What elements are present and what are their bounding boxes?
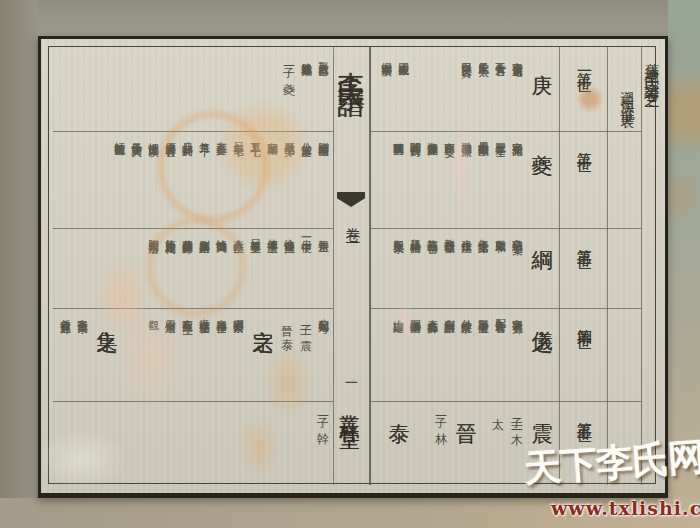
bio-text-column: 保甲黃氏贇 (457, 51, 472, 59)
bio-text-column: 曆七年辛卯 (280, 131, 295, 139)
bio-text-column: 師衛國公配 (110, 131, 125, 139)
genealogy-book-spread: 李氏宗譜 卷三 一 叢桂堂 舊塘李氏宗譜卷之三 遡祖源流世表 第一世第二世第三世… (38, 36, 668, 498)
generation-label: 第五世 (575, 401, 594, 419)
bio-text-column: 配慶拜官石 (491, 308, 506, 316)
bio-text-column: 螺山之原以 (144, 131, 159, 139)
bio-text-column: 贈閣待制封 (406, 131, 421, 139)
bio-text-column: 原鄉曆村甚 (161, 131, 176, 139)
children-note-column: 子一 林 (430, 401, 447, 424)
generation-column-rule (607, 47, 608, 485)
bio-text-column: 豐三年進士 (491, 131, 506, 139)
children-note-column: 子一 夔 (278, 51, 295, 74)
bio-text-column: 日亥年七十 (229, 131, 244, 139)
bio-text-column: 有五葬于是 (212, 131, 227, 139)
bio-text-column: 國夫人徽配 (394, 51, 409, 59)
generation-cell: 第二世 (561, 131, 607, 228)
bio-text-column: 任右通直郎 (56, 308, 71, 316)
generation-cell: 第四世 (561, 308, 607, 401)
bio-text-column: 年八月二十 (195, 131, 210, 139)
title-column-rule (641, 47, 642, 485)
edition-title: 舊塘李氏宗譜卷之三 (639, 51, 661, 87)
bio-text-column: 飭建忠定祠 (161, 228, 176, 236)
watermark-site-url: www.txlishi.com (551, 497, 700, 519)
generation-cell: 第一世 (561, 51, 607, 131)
bio-text-column: 子之風配太 (474, 51, 489, 59)
bio-text-column: 費葬殮賻卹 (178, 228, 193, 236)
ancestor-name: 震 (525, 401, 553, 407)
bio-text-column: 宣和三年閏 (263, 131, 278, 139)
children-note-column: 太 (487, 401, 504, 409)
bio-text-column: 滁知邵州兼 (457, 131, 472, 139)
children-note-column: 晉 泰 (276, 308, 293, 330)
bio-text-column: 觀 (144, 308, 159, 312)
bio-text-column: 寫劍旗誥假 (440, 308, 455, 316)
bio-text-column: 郡太君自邵 (314, 51, 329, 59)
volume-label: 卷三 (342, 215, 362, 223)
generation-band: 夔字斯和宋元豐三年進士累官徽猷閣滁知邵州兼京西兩路安撫使建炎間贈閣待制封隴西開國… (371, 131, 559, 228)
ancestor-name: 綱 (525, 228, 553, 234)
bio-text-column: 八日葬於閭 (178, 131, 193, 139)
section-title: 遡祖源流世表 (609, 79, 637, 109)
bio-text-column: 字華胄高宗 (73, 308, 88, 316)
generation-band: 子一 幹 (53, 401, 333, 489)
bio-text-column: 拜丞相特贈 (406, 228, 421, 236)
bio-text-column: 管台州崇道 (161, 308, 176, 316)
bio-text-column: 李九麓葬衡 (423, 308, 438, 316)
bio-text-column: 字伯紀號梁 (508, 228, 523, 236)
bio-text-column: 教授歷仕徽 (440, 228, 455, 236)
ancestor-name: 晉 (449, 401, 477, 407)
bio-text-column: 興十年正月 (314, 228, 329, 236)
generation-band: 公祠配知考子三 震晉 泰宗之字綱與蔡余廕補進士任復櫝建士任右宣教郎主管台州崇道觀… (53, 308, 333, 401)
bio-text-column: 嗣緣臺特贈 (406, 308, 421, 316)
bio-text-column: 字斯和宋元 (508, 131, 523, 139)
bio-text-column: 悼遣使傳問 (212, 228, 227, 236)
bio-text-column: 廕補進士任 (212, 308, 227, 316)
bio-text-column: 京西兩路安 (440, 131, 455, 139)
bio-text-column: 公生於宋慶 (297, 131, 312, 139)
ancestor-name: 庚 (525, 51, 553, 57)
bio-text-column: 不仕有古君 (491, 51, 506, 59)
ancestor-name: 儀之 (525, 308, 553, 314)
bio-text-column: 欽高三朝官 (423, 228, 438, 236)
photo-backdrop-left (0, 0, 38, 528)
bio-text-column: 使潭州十五 (263, 228, 278, 236)
bio-text-column: 谿宋政和二 (491, 228, 506, 236)
ancestor-name: 夔 (525, 131, 553, 137)
bio-text-column: 日薨享年五 (246, 228, 261, 236)
bio-text-column: 字象賢號郊 (508, 308, 523, 316)
children-note-column: 子一 幹 (312, 401, 329, 424)
generation-band: 贈太師衛國公生於宋慶曆七年辛卯宣和三年閏五月二十七日亥年七十有五葬于是年八月二十… (53, 131, 333, 228)
generation-label: 第一世 (575, 51, 594, 69)
generation-band: 興十年正月十一日中使徐甫傳宣撫使潭州十五日薨享年五十有八上軫悼遣使傳問瘞別其塋給… (53, 228, 333, 308)
bio-text-column: 十一日中使 (297, 228, 312, 236)
children-note-column: 子三 震 (295, 308, 312, 331)
ancestor-name: 泰 (382, 401, 410, 407)
bio-text-column: 謙郡主管甬 (474, 308, 489, 316)
ancestor-name: 集之 (90, 308, 118, 314)
generation-band: 儀之字象賢號郊配慶拜官石謙郡主管甬外排崇院常寫劍旗誥假李九麓葬衡嗣緣臺特贈山諡忠… (371, 308, 559, 401)
bio-text-column: 復櫝建士任 (195, 308, 210, 316)
bio-text-column: 隴西開國男 (389, 131, 404, 139)
generation-cell: 第三世 (561, 228, 607, 308)
bio-text-column: 右宣教郎主 (178, 308, 193, 316)
photo-backdrop-top (0, 0, 700, 36)
bio-text-column: 士歿任鎮江 (457, 228, 472, 236)
generation-band: 郡太君自邵武始遷無錫子一 夔 (53, 51, 333, 131)
bio-text-column: 武始遷無錫 (297, 51, 312, 59)
bio-text-column: 瘞別其塋給 (195, 228, 210, 236)
fold-left-rule (333, 47, 334, 485)
genealogy-title: 李氏宗譜 (336, 50, 366, 74)
generation-band: 庚字廣寅號培居不仕有古君子之風配太保甲黃氏贇國夫人徽配倪氏贈廣平 (371, 51, 559, 131)
bio-text-column: 撫使建炎間 (423, 131, 438, 139)
generation-label: 第二世 (575, 131, 594, 149)
bio-text-column: 累官徽猷閣 (474, 131, 489, 139)
bio-text-column: 字綱與蔡余 (229, 308, 244, 316)
generation-label: 第四世 (575, 308, 594, 326)
bio-text-column: 贈太師衛國 (314, 131, 329, 139)
bio-text-column: 山諡忠定 (389, 308, 404, 315)
hall-name: 叢桂堂 (338, 399, 364, 420)
bio-text-column: 五月二十七 (246, 131, 261, 139)
bio-text-column: 外排崇院常 (457, 308, 472, 316)
generation-label: 第三世 (575, 228, 594, 246)
bio-text-column: 長子貴贈大 (127, 131, 142, 139)
bio-text-column: 贈太保祔廟 (144, 228, 159, 236)
ancestor-name: 宗之 (246, 308, 274, 314)
name-column-rule (559, 47, 560, 485)
bio-text-column: 公祠配知考 (314, 308, 329, 316)
bio-text-column: 徐甫傳宣撫 (280, 228, 295, 236)
bio-text-column: 十有八上軫 (229, 228, 244, 236)
bio-text-column: 字廣寅號培居 (508, 51, 523, 60)
bio-text-column: 觀文殿大學 (389, 228, 404, 236)
bio-text-column: 倪氏贈廣平 (377, 51, 392, 59)
bio-text-column: 年進士第除 (474, 228, 489, 236)
generation-band: 綱字伯紀號梁谿宋政和二年進士第除士歿任鎮江教授歷仕徽欽高三朝官拜丞相特贈觀文殿大… (371, 228, 559, 308)
children-note-column: 子二 一木 (506, 401, 523, 425)
